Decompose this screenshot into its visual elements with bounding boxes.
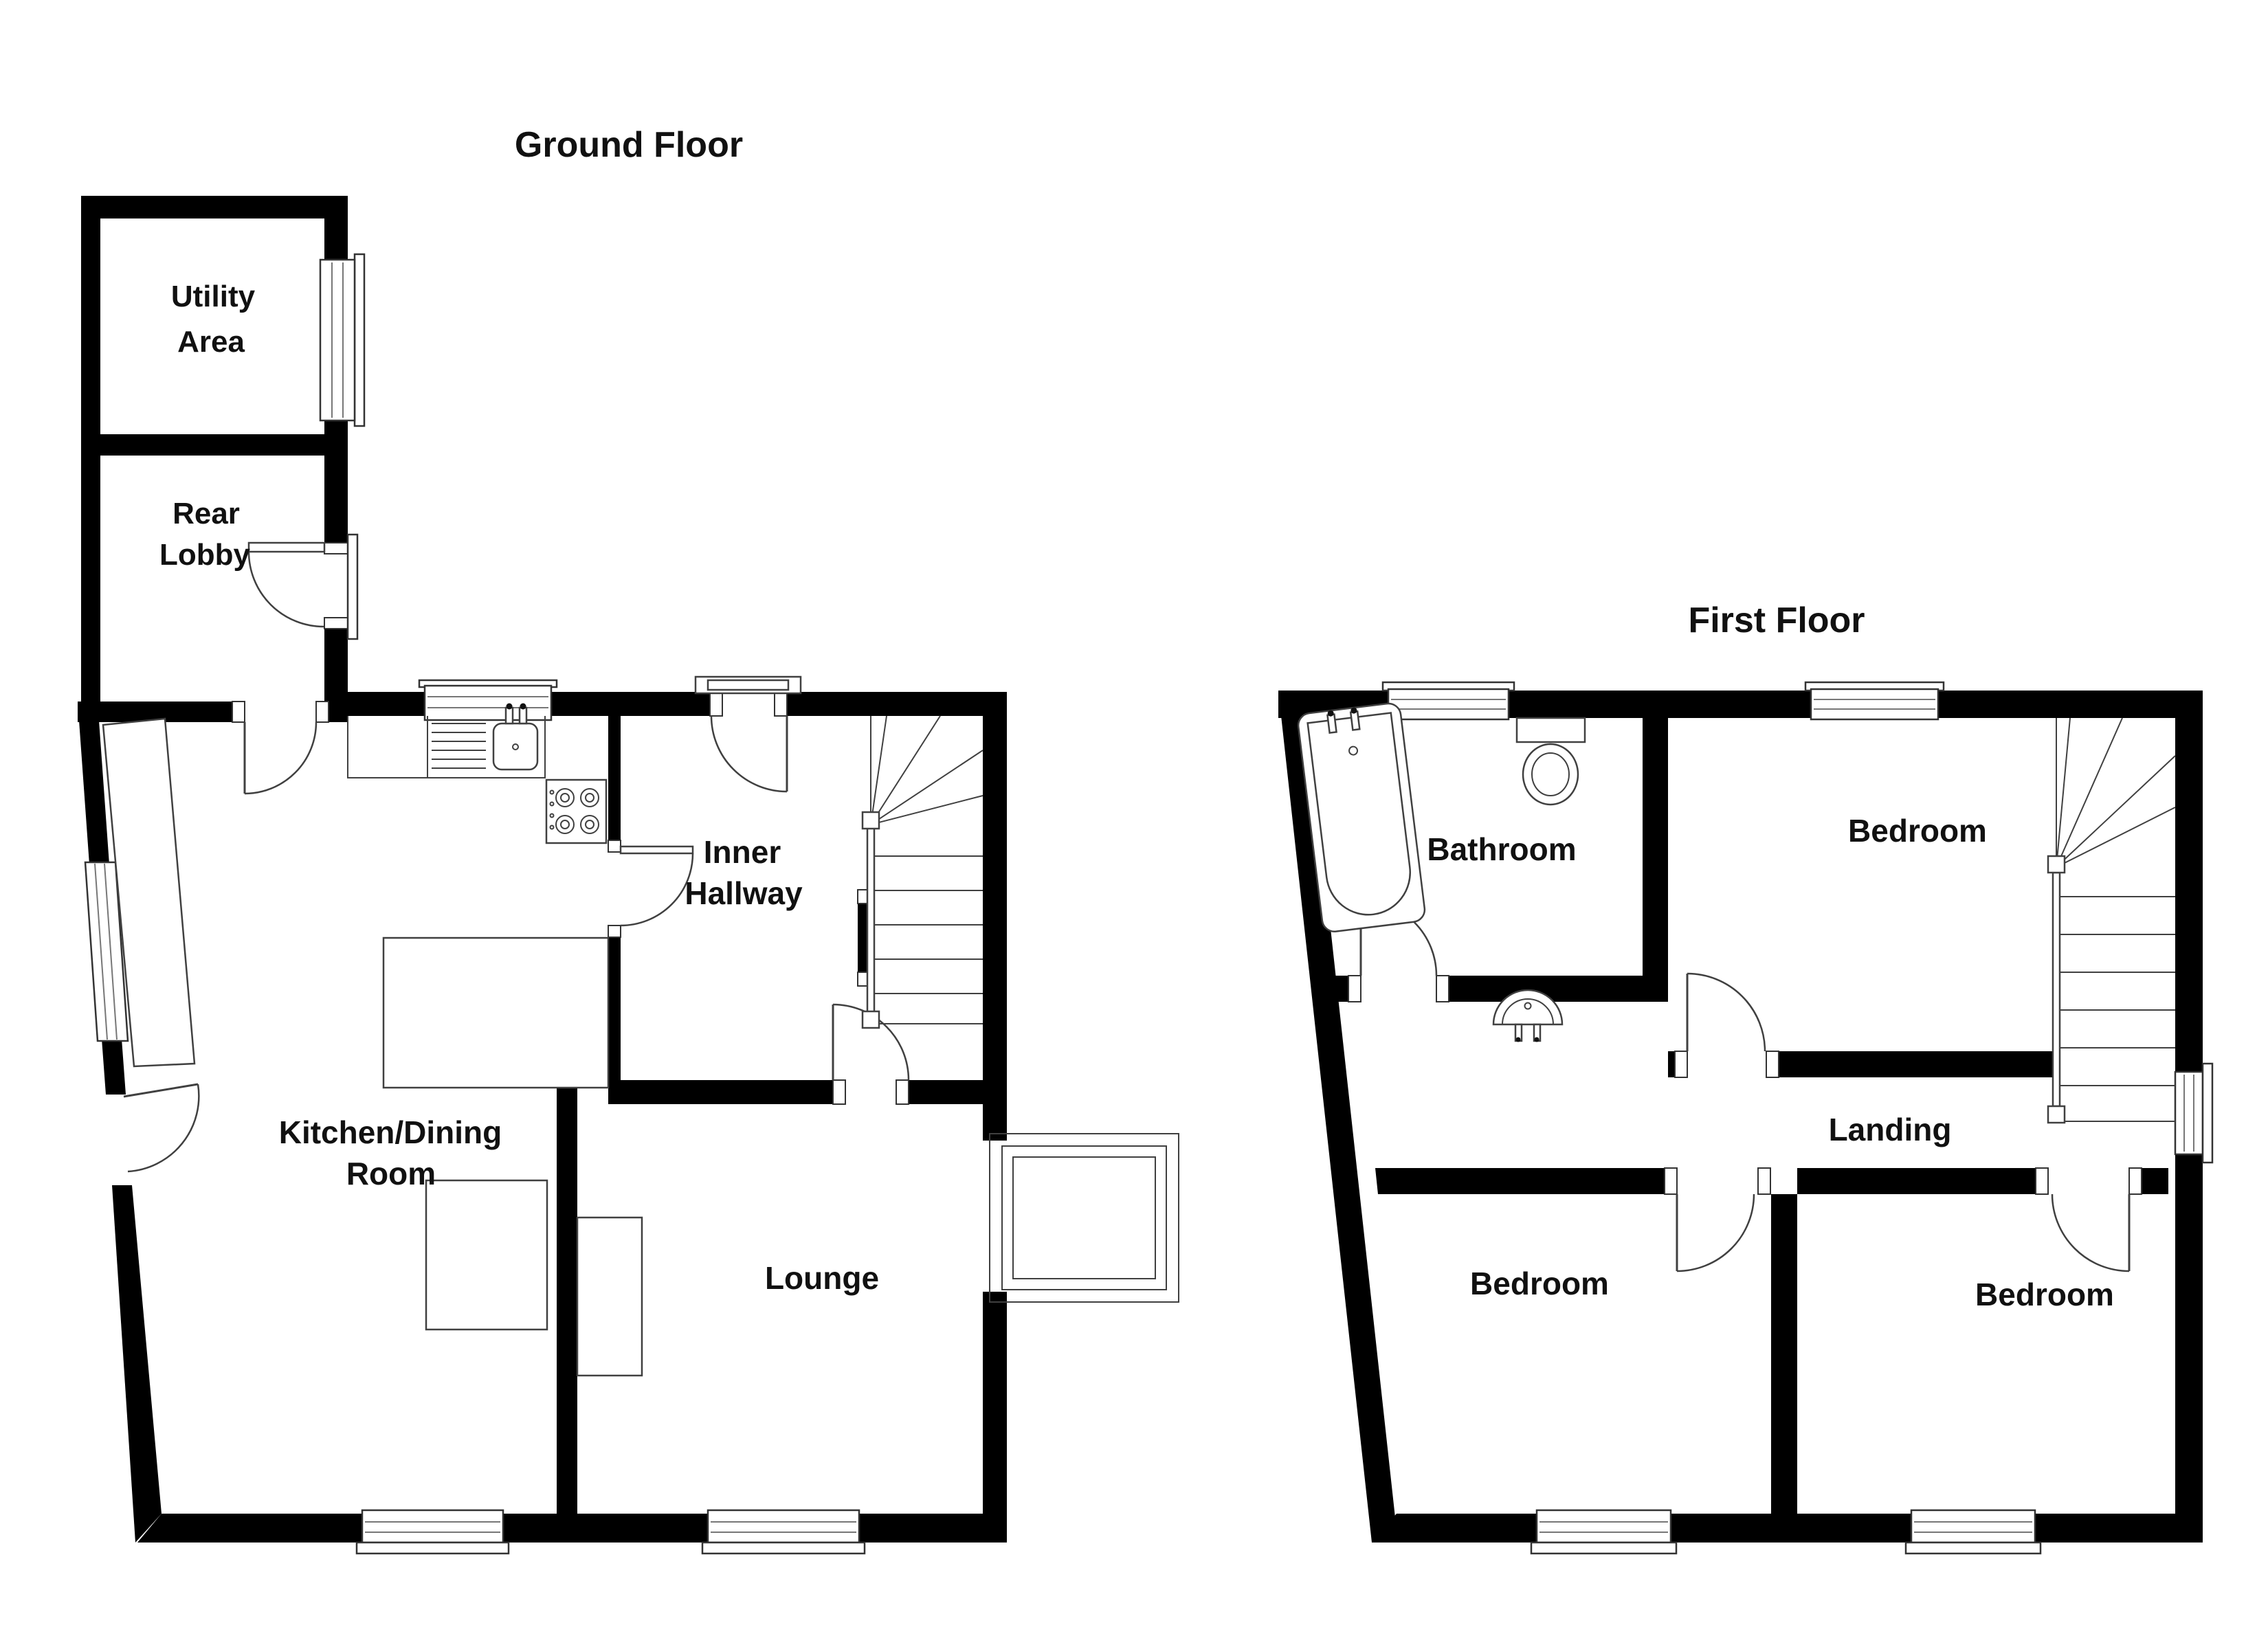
staircase-ground (863, 716, 983, 1028)
label-bedroom-rear: Bedroom (1848, 813, 1987, 849)
bathroom-window (1383, 682, 1514, 719)
label-kitchen-dining-1: Kitchen/Dining (279, 1114, 502, 1150)
label-landing: Landing (1829, 1112, 1952, 1147)
toilet (1517, 718, 1585, 805)
first-floor-title: First Floor (1688, 601, 1865, 640)
front-entrance-door (696, 677, 801, 792)
bedroom-rear-window (1805, 682, 1944, 719)
sink-window (419, 680, 557, 720)
bay-window (990, 1134, 1179, 1302)
bedroom-front-left-window (1531, 1510, 1676, 1553)
landing-window (2175, 1064, 2212, 1163)
floorplan-page: Ground Floor (0, 0, 2268, 1649)
bedroom-front-right-window (1906, 1510, 2041, 1553)
staircase-first (2048, 718, 2175, 1123)
label-rear-lobby-1: Rear (173, 497, 240, 530)
ground-floor-plan: Ground Floor (78, 125, 1179, 1553)
hob (546, 780, 606, 843)
kitchen-furniture-rect (426, 1180, 547, 1330)
label-utility-area-2: Area (177, 325, 245, 359)
bedroom-front-right-door (2036, 1168, 2142, 1271)
label-bedroom-front-right: Bedroom (1975, 1277, 2114, 1312)
bedroom-rear-door (1675, 974, 1779, 1077)
bedroom-front-left-door (1665, 1168, 1770, 1271)
floorplan-canvas: Ground Floor (0, 0, 2268, 1649)
lounge-window (702, 1510, 865, 1553)
utility-window (320, 254, 364, 426)
label-inner-hallway-1: Inner (704, 834, 781, 870)
side-wall-door (124, 1084, 199, 1171)
lobby-kitchen-door (232, 702, 329, 794)
label-inner-hallway-2: Hallway (685, 875, 803, 911)
kitchen-window (357, 1510, 509, 1553)
kitchen-hallway-door (608, 840, 693, 937)
label-kitchen-dining-2: Room (346, 1156, 436, 1191)
chimney-breast (577, 1218, 642, 1376)
label-bathroom: Bathroom (1427, 831, 1576, 867)
label-bedroom-front-left: Bedroom (1470, 1266, 1609, 1301)
label-rear-lobby-2: Lobby (159, 538, 251, 572)
dining-table (383, 938, 608, 1088)
ground-floor-labels: Utility Area Rear Lobby Kitchen/Dining R… (159, 280, 879, 1296)
label-lounge: Lounge (765, 1260, 879, 1296)
rear-lobby-door (249, 535, 357, 639)
first-floor-windows (1383, 682, 2212, 1553)
label-utility-area-1: Utility (171, 280, 256, 313)
first-floor-plan: First Floor (1278, 601, 2212, 1553)
first-floor-doors (1348, 900, 2142, 1271)
ground-floor-title: Ground Floor (515, 125, 743, 165)
